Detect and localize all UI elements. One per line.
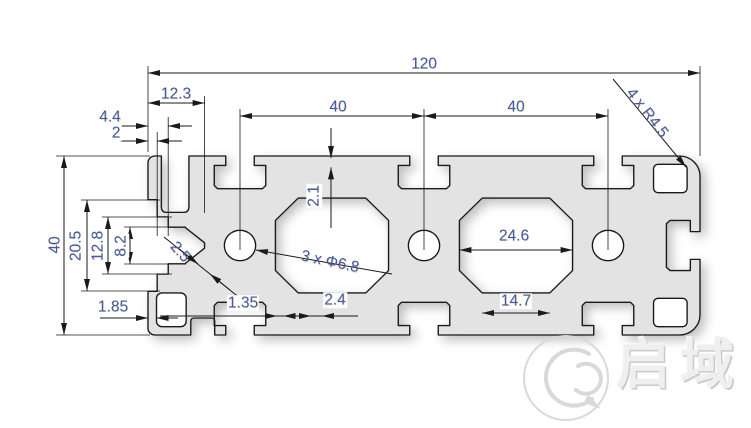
dim-overall-width: 120: [410, 56, 438, 72]
corner-cavity-bottom-right: [654, 298, 688, 326]
technical-drawing-40120-profile: 120 12.3 4.4 2 40 40 4 x R4.5 2.1 3 x Φ6…: [0, 0, 751, 428]
qiyu-q-logo: [524, 336, 608, 420]
dim-left-offset: 12.3: [160, 86, 192, 102]
dim-cavity-width: 24.6: [498, 228, 530, 244]
dim-rib-wall: 1.35: [227, 295, 259, 311]
corner-cavity-bottom-left: [157, 293, 187, 327]
dim-left-wall: 1.85: [97, 299, 129, 315]
dim-left-slot-inner: 8.2: [113, 234, 129, 258]
dim-bottom-wall: 2.4: [323, 292, 347, 308]
dim-slot-pitch-right: 40: [506, 99, 525, 115]
dim-left-step-outer: 4.4: [98, 109, 122, 125]
watermark-brand-text: 启域: [616, 338, 751, 392]
dim-cavity-bottom-width: 14.7: [500, 293, 532, 309]
dim-left-step-inner: 2: [111, 125, 122, 141]
dim-left-slot-outer: 20.5: [68, 230, 84, 262]
dim-top-wall: 2.1: [306, 184, 322, 208]
dim-left-slot-mid: 12.8: [90, 230, 106, 262]
dim-overall-height: 40: [47, 235, 63, 254]
dim-slot-pitch-left: 40: [328, 99, 347, 115]
corner-cavity-top-right: [654, 164, 688, 192]
